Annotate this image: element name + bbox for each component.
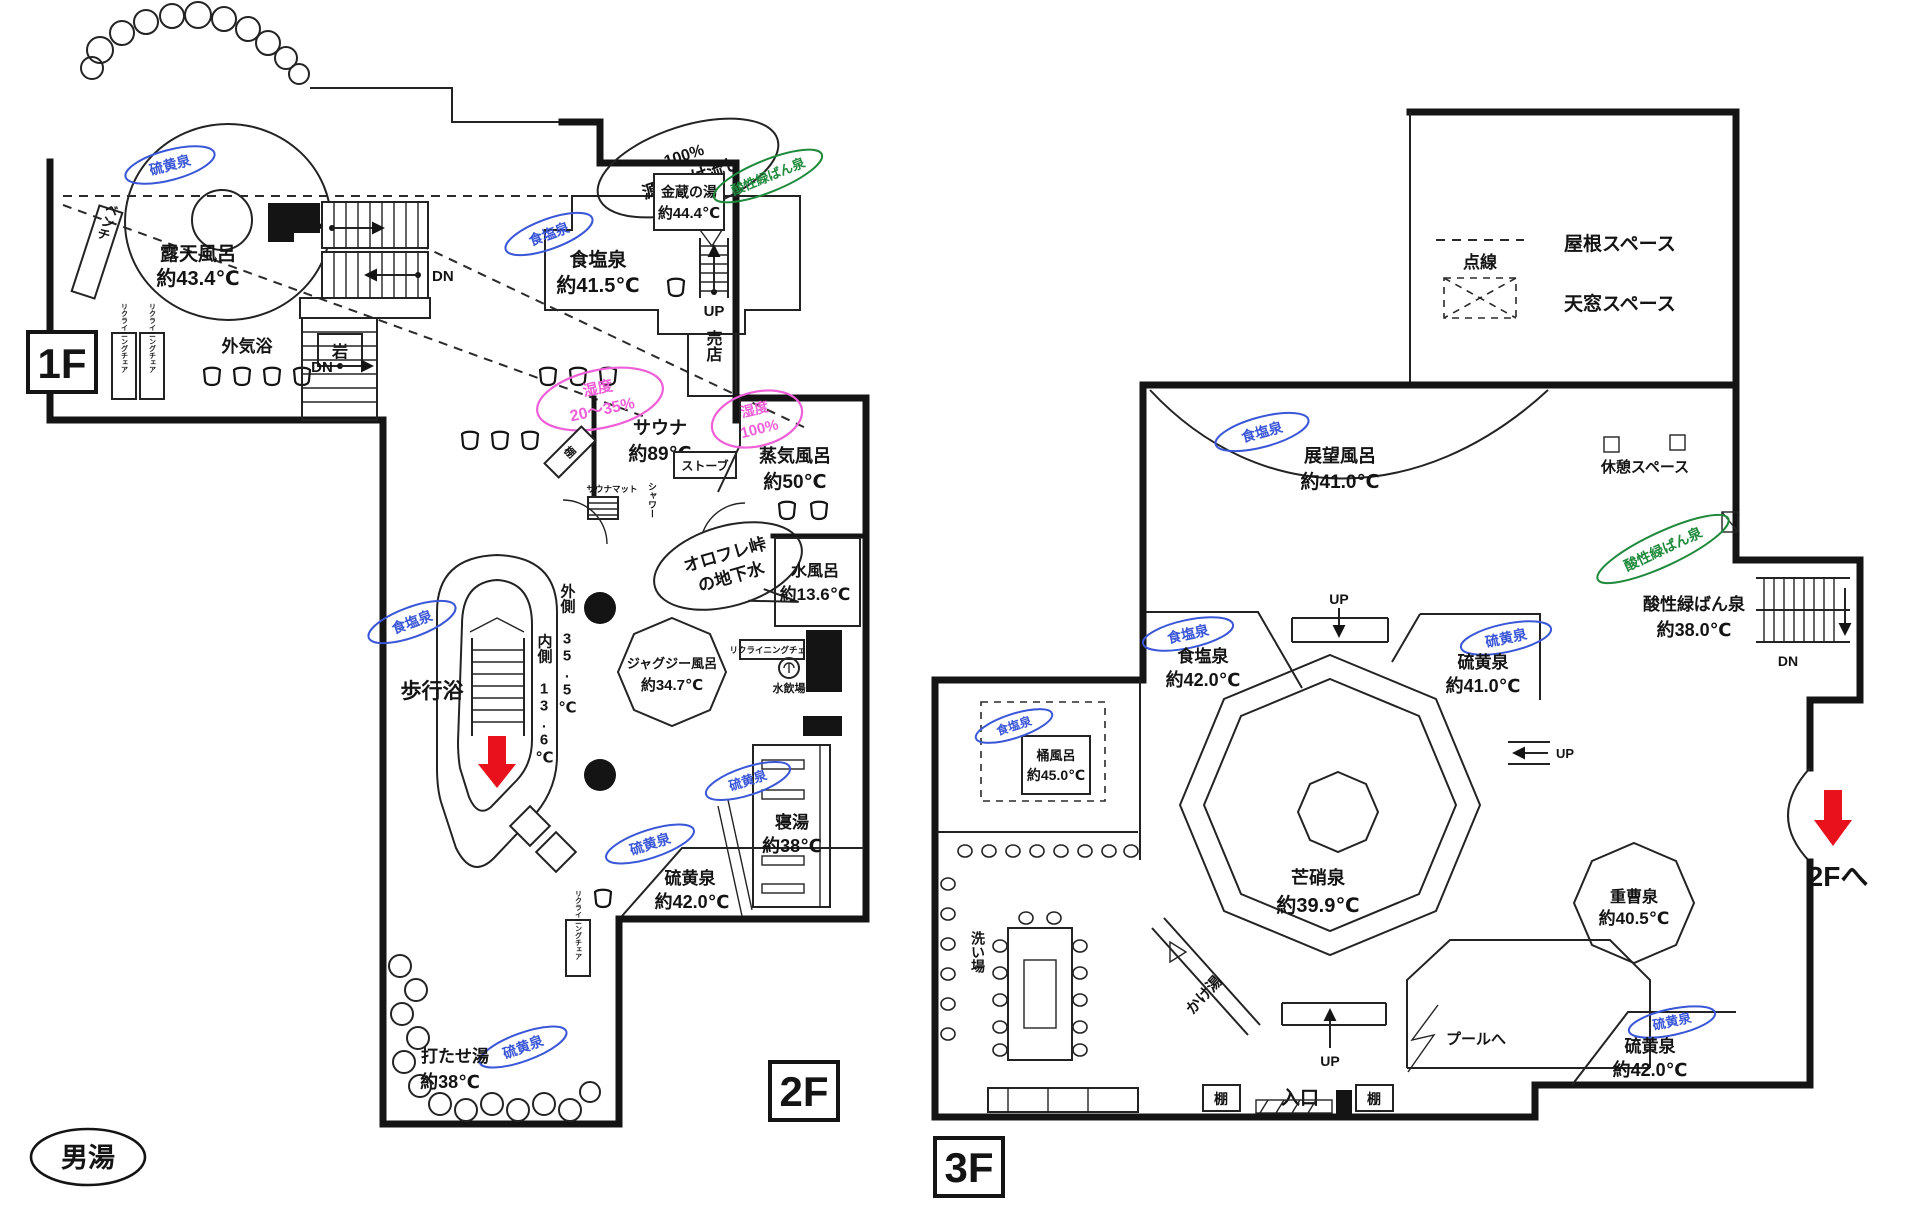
- kinzo-name: 金蔵の湯: [660, 184, 717, 200]
- floor-1-badge: 1F: [28, 332, 96, 392]
- pillar: [584, 592, 616, 624]
- staircase-1f-right: UP: [700, 238, 728, 320]
- to-2f-arrow: 2Fへ: [1808, 790, 1869, 892]
- floor-1-section: ベンチ 硫黄泉 露天風呂 約43.4℃ 1F リクライニングチェア リクライニン…: [28, 2, 828, 430]
- tub-bath: 食塩泉 桶風呂 約45.0℃: [972, 702, 1105, 801]
- acid-green-temp: 約38.0℃: [1657, 619, 1732, 640]
- baking-soda-temp: 約40.5℃: [1599, 908, 1670, 928]
- rock-cluster-icon: [389, 955, 600, 1121]
- rock-sign-label: 岩: [331, 342, 348, 361]
- tub-bath-temp: 約45.0℃: [1027, 767, 1085, 783]
- to-2f-label: 2Fへ: [1808, 861, 1869, 892]
- rotenburo-name: 露天風呂: [160, 243, 236, 265]
- bridge-right: UP: [1508, 742, 1574, 764]
- seat-icon: [204, 368, 220, 385]
- floor-2-badge: 2F: [770, 1062, 838, 1120]
- steam-bath-temp: 約50℃: [763, 470, 826, 493]
- water-fountain-label: 水飲場: [773, 681, 806, 695]
- glauber-temp: 約39.9℃: [1276, 893, 1359, 917]
- shokusen-1f-temp: 約41.5℃: [556, 273, 639, 297]
- seat-icon: [595, 890, 611, 907]
- rock-garden-icon: [81, 2, 309, 84]
- legend: 点線 屋根スペース 天窓スペース: [1436, 232, 1676, 318]
- wall-block-small: [268, 228, 294, 242]
- glauber-salt-bath: 芒硝泉 約39.9℃: [1180, 655, 1480, 955]
- spring-tag-label: 食塩泉: [1240, 419, 1286, 446]
- up-label-right: UP: [704, 303, 725, 320]
- shop-room: 売店: [688, 329, 736, 396]
- walking-bath-label: 歩行浴: [401, 679, 465, 703]
- to-pool: プールへ: [1407, 940, 1650, 1072]
- salt-3f-temp: 約42.0℃: [1166, 669, 1241, 690]
- cold-bath-name: 水風呂: [791, 561, 839, 580]
- jacuzzi-octagon: ジャグジー風呂 約34.7℃: [618, 618, 726, 726]
- jacuzzi-name: ジャグジー風呂: [627, 656, 717, 671]
- bathhouse-floor-plan: ベンチ 硫黄泉 露天風呂 約43.4℃ 1F リクライニングチェア リクライニン…: [0, 0, 1920, 1219]
- floor-3-text: 3F: [944, 1144, 993, 1191]
- acid-green-bath: 酸性緑ばん泉 酸性緑ばん泉 約38.0℃: [1591, 503, 1746, 640]
- seat-icon: [462, 432, 478, 449]
- spring-tag-salt-track: 食塩泉: [364, 592, 461, 652]
- floor-2-text: 2F: [779, 1068, 828, 1115]
- spring-tag-sulfur-2f: 硫黄泉: [602, 816, 698, 871]
- bench-label: ベンチ: [94, 201, 120, 243]
- pool-label: プールへ: [1446, 1031, 1506, 1048]
- baking-soda-bath: 重曹泉 約40.5℃: [1574, 843, 1694, 963]
- lying-bath: 硫黄泉 寝湯 約38℃: [702, 716, 842, 916]
- spring-tag-acid-green-3f: 酸性緑ばん泉: [1591, 503, 1736, 595]
- tub-bath-name: 桶風呂: [1035, 748, 1075, 763]
- staircase-1f: UP DN DN: [300, 202, 454, 420]
- shower-label: シャワー: [647, 482, 657, 518]
- sauna-humidity-line1: 湿度: [581, 376, 615, 400]
- sulfur-41-temp: 約41.0℃: [1446, 675, 1521, 696]
- wall-3f-topright: [1410, 112, 1736, 560]
- salt-3f-name: 食塩泉: [1178, 646, 1230, 666]
- legend-skylight-label: 天窓スペース: [1564, 292, 1676, 315]
- kinzo-temp: 約44.4℃: [658, 204, 720, 222]
- up-label-bridge-top: UP: [1329, 591, 1348, 607]
- seat-icon: [492, 432, 508, 449]
- view-bath: 食塩泉 展望風呂 約41.0℃: [1150, 390, 1548, 493]
- rotenburo-temp: 約43.4℃: [156, 266, 239, 290]
- seat-icon: [540, 368, 556, 385]
- mens-bath-stamp: 男湯: [31, 1129, 145, 1185]
- cold-bath-temp: 約13.6℃: [780, 584, 851, 604]
- water-fountain: 水飲場: [773, 658, 806, 695]
- spring-tag-salt-oke: 食塩泉: [972, 702, 1056, 750]
- waterfall-bath-name: 打たせ湯: [421, 1046, 489, 1066]
- flow-arrow-red: [478, 736, 516, 788]
- inner-lane-label: 内側 13.6℃: [536, 633, 554, 767]
- mens-bath-label: 男湯: [61, 1143, 115, 1173]
- outer-lane-label: 外側 35.5℃: [559, 583, 577, 717]
- recliner-label: リクライニングチェア: [575, 890, 583, 960]
- seat-icon: [779, 502, 795, 519]
- sulfur-42-temp: 約42.0℃: [1613, 1059, 1688, 1080]
- washing-area-label: 洗い場: [970, 930, 986, 974]
- rest-space-label: 休憩スペース: [1600, 458, 1689, 476]
- baking-soda-name: 重曹泉: [1610, 887, 1659, 906]
- glauber-name: 芒硝泉: [1291, 867, 1346, 888]
- sulfur-2f-temp: 約42.0℃: [655, 891, 730, 912]
- reclining-chair-sign-2f-b: リクライニングチェア: [566, 890, 590, 976]
- bench: ベンチ: [72, 199, 125, 298]
- sulfur-spring-41: 硫黄泉 硫黄泉 約41.0℃: [1392, 614, 1554, 700]
- reclining-chairs-1f: リクライニングチェア リクライニングチェア: [112, 303, 164, 399]
- spring-tag-sulfur-utase: 硫黄泉: [475, 1018, 571, 1076]
- sulfur-42-name: 硫黄泉: [1625, 1036, 1677, 1056]
- up-label-bridge-right: UP: [1556, 746, 1574, 761]
- floor-3-badge: 3F: [935, 1138, 1003, 1196]
- pillar: [584, 759, 616, 791]
- spring-tag-label: 食塩泉: [1166, 622, 1211, 647]
- spring-tag-label: 硫黄泉: [1484, 626, 1529, 651]
- stove-label: ストーブ: [681, 458, 728, 473]
- floor-plan-canvas: ベンチ 硫黄泉 露天風呂 約43.4℃ 1F リクライニングチェア リクライニン…: [0, 0, 1920, 1219]
- spring-tag-sulfur-neyu: 硫黄泉: [702, 754, 794, 808]
- shop-label: 売店: [704, 329, 723, 363]
- washing-area: 洗い場: [937, 680, 1140, 1112]
- dn-label-stairs-2: DN: [311, 359, 333, 376]
- legend-roof-label: 屋根スペース: [1564, 232, 1676, 255]
- spring-tag-label: 硫黄泉: [1651, 1010, 1693, 1033]
- floor-3-section: 点線 屋根スペース 天窓スペース 食塩泉 展望風呂 約41.0℃ 休憩スペース: [935, 112, 1868, 1196]
- salt-spring-3f: 食塩泉 食塩泉 約42.0℃: [1140, 611, 1302, 690]
- shelf-label-left: 棚: [1214, 1091, 1228, 1107]
- waterfall-bath-temp: 約38℃: [420, 1071, 480, 1092]
- rotenburo-island: [192, 190, 252, 250]
- shokusen-1f-name: 食塩泉: [569, 248, 627, 271]
- seat-icon: [264, 368, 280, 385]
- kinzo-no-yu-box: 金蔵の湯 約44.4℃: [654, 174, 724, 246]
- bridge-top: UP: [1292, 591, 1388, 642]
- up-label-bridge-bottom: UP: [1320, 1053, 1339, 1069]
- seat-icon: [522, 432, 538, 449]
- dn-label-stairs: DN: [432, 268, 454, 285]
- door-notch-arc: [1788, 768, 1810, 862]
- up-label-stairs: UP: [302, 220, 323, 237]
- wall-column: [806, 630, 842, 692]
- kakeyu-channel: かけ湯: [1152, 918, 1260, 1035]
- steam-humidity-line2: 100%: [739, 416, 780, 442]
- sulfur-2f-name: 硫黄泉: [665, 868, 717, 888]
- sulfur-spring-42-3f: 硫黄泉 硫黄泉 約42.0℃: [1572, 1000, 1736, 1085]
- rest-space: 休憩スペース: [1600, 435, 1689, 476]
- gaikiyoku-label: 外気浴: [222, 336, 274, 356]
- bridge-bottom: UP: [1282, 1003, 1386, 1069]
- sauna-mat-label: サウナマット: [586, 484, 637, 494]
- legend-dotted-label: 点線: [1463, 252, 1497, 272]
- floor-2-section: 湿度 20〜35% サウナ 約89℃ ストーブ 棚 サウナマット シャワー 湿度: [364, 357, 866, 1124]
- waterfall-bath-area: 硫黄泉 打たせ湯 約38℃: [389, 955, 600, 1121]
- sauna-name: サウナ: [633, 418, 687, 438]
- seat-icon: [811, 502, 827, 519]
- shelf-sauna: 棚: [545, 427, 596, 478]
- spring-tag-label: 酸性緑ばん泉: [729, 155, 808, 199]
- walking-bath-track: 歩行浴 外側 35.5℃ 内側 13.6℃ 食塩泉: [364, 555, 576, 872]
- kakeyu-label: かけ湯: [1183, 973, 1226, 1018]
- spring-tag-label: 硫黄泉: [501, 1032, 547, 1062]
- jacuzzi-temp: 約34.7℃: [641, 676, 703, 694]
- seat-icon: [668, 279, 684, 296]
- view-bath-temp: 約41.0℃: [1301, 470, 1380, 493]
- view-bath-name: 展望風呂: [1304, 445, 1376, 466]
- dn-label-3f: DN: [1778, 653, 1798, 669]
- steam-bath-name: 蒸気風呂: [759, 445, 831, 466]
- shelf-label-right: 棚: [1367, 1091, 1381, 1107]
- recliner-label: リクライニングチェア: [729, 645, 815, 655]
- garden-wall: [310, 88, 560, 122]
- floor-1-text: 1F: [37, 340, 86, 387]
- recliner-label-2: リクライニングチェア: [149, 303, 157, 373]
- seat-icon: [234, 368, 250, 385]
- sulfur-41-name: 硫黄泉: [1458, 652, 1510, 672]
- sulfur-bath-2f: 硫黄泉 硫黄泉 約42.0℃: [595, 816, 864, 916]
- reclining-chair-sign-2f: リクライニングチェア: [729, 640, 815, 659]
- staircase-3f: DN: [1756, 578, 1850, 669]
- lying-bath-temp: 約38℃: [762, 835, 822, 856]
- acid-green-name: 酸性緑ばん泉: [1643, 594, 1746, 614]
- spring-tag-salt-tenbo: 食塩泉: [1212, 405, 1312, 459]
- lying-bath-name: 寝湯: [775, 812, 809, 832]
- recliner-label-1: リクライニングチェア: [121, 303, 129, 373]
- entrance-area: 棚 入口 棚: [1203, 1085, 1393, 1114]
